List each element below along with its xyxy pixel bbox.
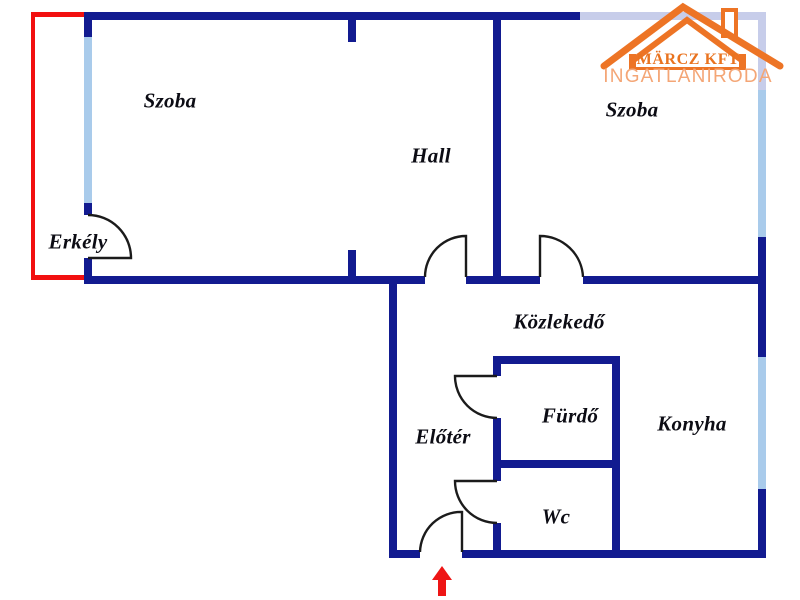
- room-label-konyha: Konyha: [657, 412, 727, 437]
- kozlekedo-door-icon: [540, 236, 583, 277]
- furdo-door-icon: [455, 376, 497, 418]
- logo-subtitle: INGATLANIRODA: [603, 66, 772, 88]
- entrance-door-icon: [420, 512, 462, 552]
- room-label-kozlekedo: Közlekedő: [513, 310, 604, 335]
- room-label-wc: Wc: [542, 505, 571, 530]
- hall-door-icon: [425, 236, 466, 277]
- room-label-erkely: Erkély: [49, 230, 108, 255]
- floor-plan: Szoba Hall Szoba Erkély Közlekedő Előtér…: [0, 0, 800, 600]
- room-label-furdo: Fürdő: [542, 404, 598, 429]
- room-label-szoba-right: Szoba: [606, 98, 659, 123]
- room-label-szoba-left: Szoba: [144, 89, 197, 114]
- floor-plan-drawing: [0, 0, 800, 600]
- room-label-eloter: Előtér: [415, 425, 470, 450]
- room-label-hall: Hall: [411, 144, 451, 169]
- entrance-arrow-icon: [432, 566, 452, 596]
- door-arcs: [88, 215, 583, 552]
